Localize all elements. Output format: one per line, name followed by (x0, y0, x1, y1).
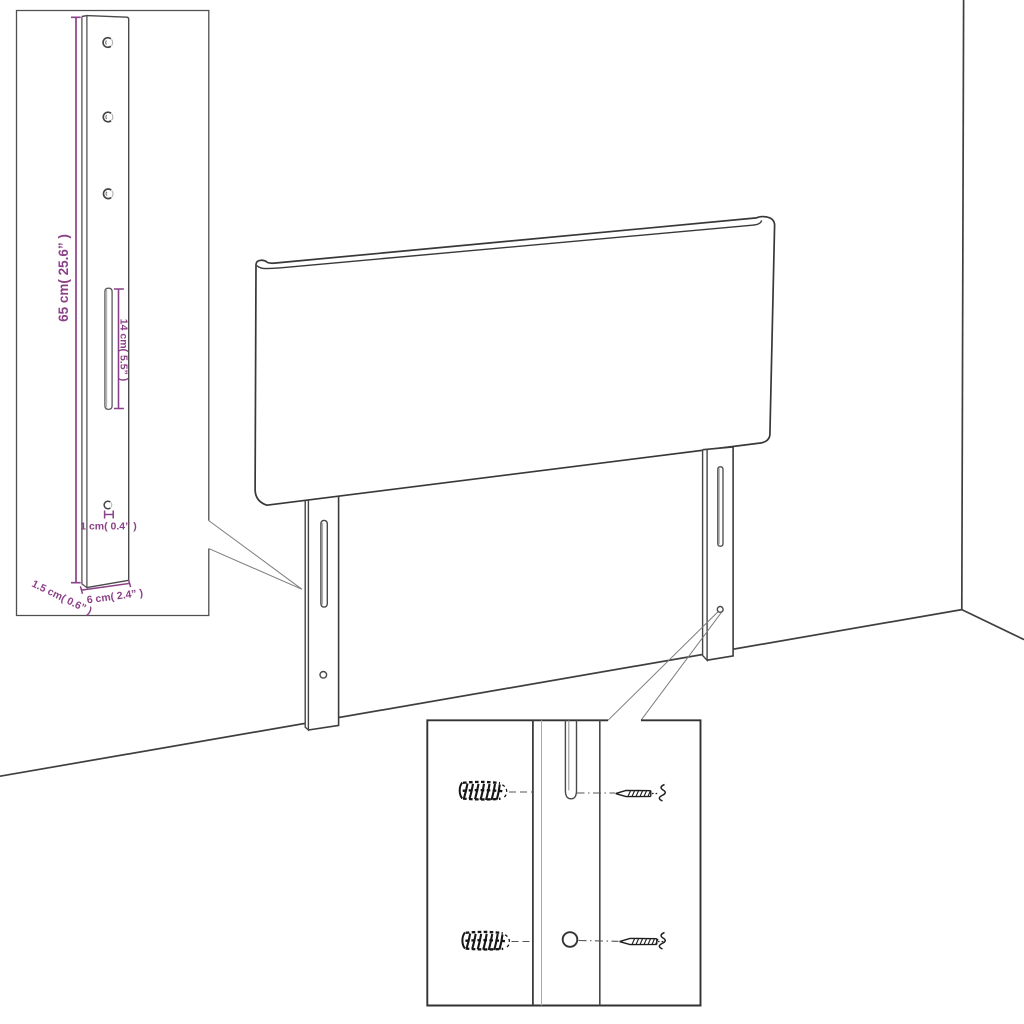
svg-text:14 cm( 5.5” ): 14 cm( 5.5” ) (118, 319, 130, 381)
svg-text:1 cm( 0.4” ): 1 cm( 0.4” ) (80, 521, 137, 533)
svg-text:65 cm( 25.6” ): 65 cm( 25.6” ) (56, 234, 71, 322)
